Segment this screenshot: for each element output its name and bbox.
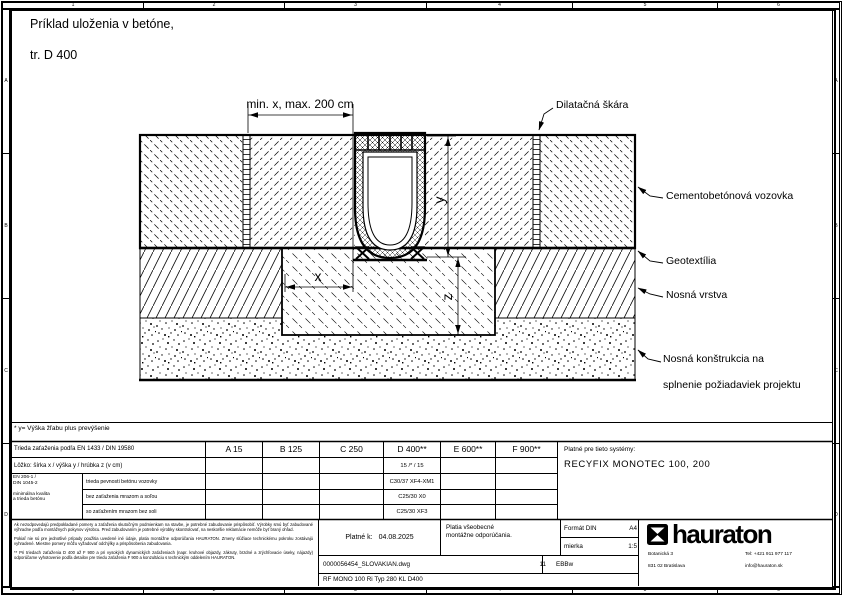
page-title-line1: Príklad uloženia v betóne, bbox=[30, 17, 174, 31]
address-line2: 831 02 Bratislava bbox=[648, 564, 685, 569]
brand-logo: hauraton bbox=[647, 523, 771, 545]
concrete-standard-line1: EN 206-1 / bbox=[13, 475, 36, 480]
class-c250: C 250 bbox=[320, 441, 383, 457]
concrete-d400-value: C25/30 XF3 bbox=[384, 505, 440, 519]
sheet-number: 11 bbox=[539, 561, 546, 568]
brand-contact: Tel: +421 911 977 117 info@hauraton.sk bbox=[745, 552, 792, 570]
class-f900: F 900** bbox=[496, 441, 557, 457]
dim-top-label: min. x, max. 200 cm bbox=[246, 97, 353, 111]
concrete-standard-line4: a trieda betónu bbox=[13, 497, 45, 502]
general-note-line1: Platia všeobecné bbox=[446, 524, 494, 531]
dim-z-label: z bbox=[439, 294, 455, 301]
dim-x-label: x bbox=[315, 268, 322, 284]
class-e600: E 600** bbox=[441, 441, 495, 457]
dim-y-label: y bbox=[431, 197, 447, 204]
brand-address: Botanická 3 831 02 Bratislava bbox=[648, 552, 685, 570]
systems-label: Platné pre tieto systémy: bbox=[564, 446, 635, 453]
valid-label: Platné k: bbox=[345, 534, 372, 541]
systems-value: RECYFIX MONOTEC 100, 200 bbox=[564, 459, 710, 470]
scale-value: 1:5 bbox=[628, 543, 637, 550]
valid-date-cell: Platné k: 04.08.2025 bbox=[319, 519, 440, 555]
fineprint-paragraph3: ** Pri triedach zaťaženia D 400 až F 900… bbox=[14, 550, 313, 560]
class-d400: D 400** bbox=[384, 441, 440, 457]
label-geotextile: Geotextília bbox=[666, 255, 716, 268]
contact-phone: Tel: +421 911 977 117 bbox=[745, 552, 792, 557]
concrete-d400-value: C30/37 XF4-XM1 bbox=[384, 474, 440, 489]
load-class-header: Trieda zaťaženia podľa EN 1433 / DIN 195… bbox=[14, 441, 204, 457]
general-note-cell: Platia všeobecné montážne odporúčania. bbox=[446, 524, 512, 539]
class-a15: A 15 bbox=[206, 441, 262, 457]
file-name: 0000056454_SLOVAKIAN.dwg bbox=[323, 561, 410, 568]
general-note-line2: montážne odporúčania. bbox=[446, 532, 512, 539]
address-line1: Botanická 3 bbox=[648, 552, 673, 557]
scale-cell: mierka 1:5 bbox=[561, 537, 640, 555]
label-substructure: Nosná konštrukcia na splnenie požiadavie… bbox=[663, 353, 801, 392]
page-title-line2: tr. D 400 bbox=[30, 48, 77, 62]
concrete-standard-line3: minimálna kvalita bbox=[13, 492, 50, 497]
logo-block: hauraton Botanická 3 831 02 Bratislava T… bbox=[639, 519, 832, 586]
page-title: Príklad uloženia v betóne, tr. D 400 bbox=[30, 17, 174, 64]
concrete-standard-line2: DIN 1045-2 bbox=[13, 481, 38, 486]
drawing-sheet: { "page": { "title1": "Príklad uloženia … bbox=[0, 0, 842, 595]
concrete-row-label: trieda pevnosti betónu vozovky bbox=[86, 474, 204, 489]
file-row: 0000056454_SLOVAKIAN.dwg 11 bbox=[319, 555, 566, 573]
concrete-d400-value: C25/30 X0 bbox=[384, 490, 440, 504]
scale-label: mierka bbox=[564, 543, 583, 550]
concrete-row-label: so zaťažením mrazom bez soli bbox=[86, 505, 204, 519]
class-b125: B 125 bbox=[263, 441, 319, 457]
hauraton-logo-icon bbox=[647, 524, 668, 545]
contact-email: info@hauraton.sk bbox=[745, 564, 783, 569]
fineprint-paragraph2: Pokiaľ nie sú pre jednotlivé prípady pou… bbox=[14, 536, 313, 546]
format-label: Formát DIN bbox=[564, 525, 597, 532]
label-concrete-pavement: Cementobetónová vozovka bbox=[666, 190, 793, 203]
concrete-row-label: bez zaťaženia mrazom a soľou bbox=[86, 490, 204, 504]
footnote-y-definition: * y= Výška žľabu plus prevýšenie bbox=[14, 425, 110, 432]
concrete-standard-cell: EN 206-1 / DIN 1045-2 minimálna kvalita … bbox=[13, 475, 79, 503]
fineprint-paragraph1: Ak nezodpovedajú predpokladané pomery a … bbox=[14, 522, 313, 532]
bedding-d400-value: 15 /* / 15 bbox=[384, 458, 440, 473]
brand-wordmark: hauraton bbox=[672, 523, 771, 545]
label-substructure-line2: splnenie požiadaviek projektu bbox=[663, 379, 801, 391]
format-cell: Formát DIN A4 bbox=[561, 519, 640, 537]
label-dilatation-joint: Dilatačná škára bbox=[556, 99, 628, 112]
author-cell: EBBw bbox=[556, 555, 636, 573]
monotec-channel bbox=[353, 133, 427, 260]
valid-date: 04.08.2025 bbox=[379, 534, 414, 541]
fineprint-disclaimer: Ak nezodpovedajú predpokladané pomery a … bbox=[14, 522, 313, 564]
type-designation-row: RF MONO 100 Ri Typ 280 KL D400 bbox=[319, 573, 641, 586]
bedding-row-label: Lôžko: šírka x / výška y / hrúbka z (v c… bbox=[14, 458, 204, 473]
label-base-course: Nosná vrstva bbox=[666, 289, 727, 302]
label-substructure-line1: Nosná konštrukcia na bbox=[663, 353, 764, 365]
format-value: A4 bbox=[629, 525, 637, 532]
